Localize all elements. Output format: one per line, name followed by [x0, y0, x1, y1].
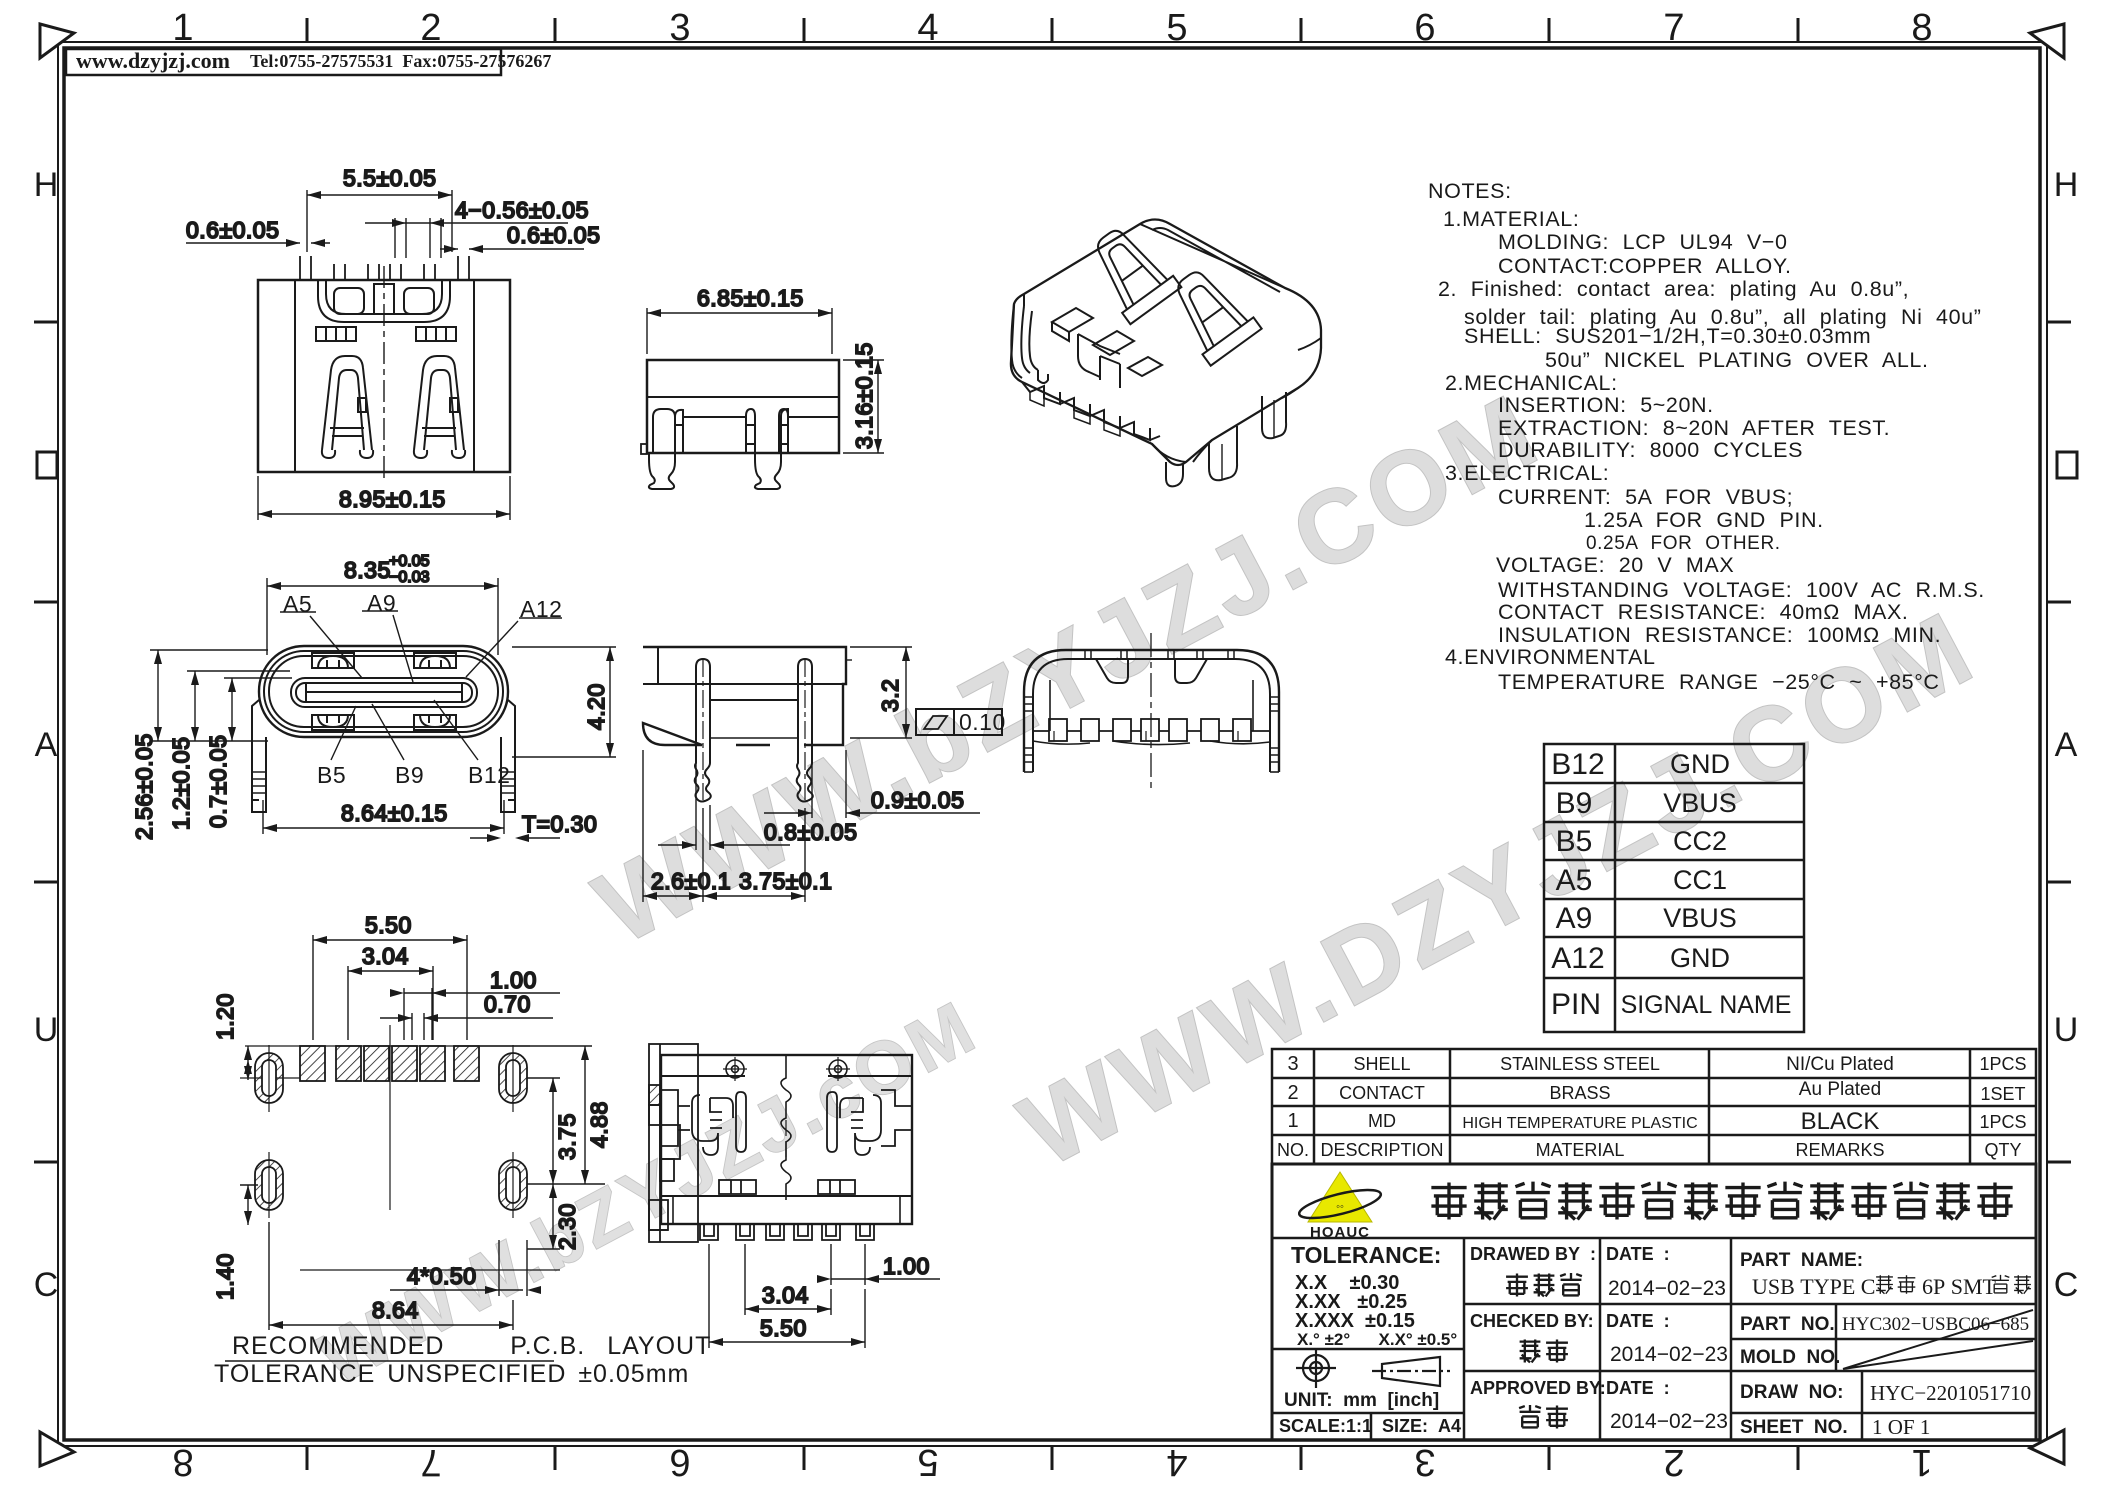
svg-text:VBUS: VBUS — [1663, 903, 1737, 933]
svg-text:A12: A12 — [1551, 942, 1604, 975]
svg-text:◦◦: ◦◦ — [1336, 1201, 1344, 1213]
svg-text:DATE :: DATE : — [1606, 1311, 1670, 1331]
svg-text:CHECKED BY:: CHECKED BY: — [1470, 1311, 1594, 1331]
svg-text:CONTACT RESISTANCE: 40mΩ MAX.: CONTACT RESISTANCE: 40mΩ MAX. — [1498, 600, 1908, 624]
svg-text:HYC302−USBC06−685: HYC302−USBC06−685 — [1842, 1314, 2029, 1335]
svg-text:INSERTION: 5~20N.: INSERTION: 5~20N. — [1498, 393, 1714, 417]
svg-text:PART NAME:: PART NAME: — [1740, 1250, 1863, 1271]
svg-text:MD: MD — [1368, 1111, 1396, 1131]
svg-text:0.10: 0.10 — [959, 709, 1006, 735]
svg-text:2.6±0.1: 2.6±0.1 — [651, 868, 731, 894]
svg-text:2014−02−23: 2014−02−23 — [1610, 1343, 1728, 1366]
svg-text:HIGH TEMPERATURE PLASTIC: HIGH TEMPERATURE PLASTIC — [1462, 1115, 1697, 1132]
svg-text:B12: B12 — [1551, 748, 1604, 781]
svg-text:2: 2 — [1663, 1441, 1684, 1483]
svg-text:TOLERANCE UNSPECIFIED ±0.05mm: TOLERANCE UNSPECIFIED ±0.05mm — [214, 1360, 689, 1388]
svg-text:C: C — [2054, 1266, 2079, 1304]
svg-text:CC1: CC1 — [1673, 865, 1727, 895]
svg-text:3: 3 — [1287, 1053, 1298, 1075]
svg-text:6: 6 — [669, 1441, 690, 1483]
svg-text:B9: B9 — [395, 762, 424, 788]
svg-text:−0.03: −0.03 — [389, 569, 430, 586]
svg-text:Tel:0755-27575531 Fax:0755-27: Tel:0755-27575531 Fax:0755-27576267 — [250, 51, 551, 71]
svg-text:5: 5 — [1166, 7, 1187, 49]
svg-text:DESCRIPTION: DESCRIPTION — [1320, 1140, 1443, 1160]
svg-text:A5: A5 — [1556, 864, 1593, 897]
svg-text:2.30: 2.30 — [554, 1203, 580, 1250]
svg-text:HYC−2201051710: HYC−2201051710 — [1870, 1381, 2031, 1405]
svg-text:0.6±0.05: 0.6±0.05 — [186, 217, 279, 243]
svg-text:4.ENVIRONMENTAL: 4.ENVIRONMENTAL — [1445, 645, 1656, 669]
svg-text:CONTACT: CONTACT — [1339, 1083, 1425, 1103]
svg-text:1.00: 1.00 — [883, 1253, 930, 1279]
svg-text:B9: B9 — [1556, 787, 1593, 820]
svg-text:BLACK: BLACK — [1801, 1108, 1880, 1135]
svg-text:UNIT: mm [inch]: UNIT: mm [inch] — [1284, 1390, 1439, 1411]
svg-text:STAINLESS STEEL: STAINLESS STEEL — [1500, 1054, 1660, 1074]
svg-text:PART NO.: PART NO. — [1740, 1314, 1835, 1335]
svg-text:EXTRACTION: 8~20N AFTER TEST.: EXTRACTION: 8~20N AFTER TEST. — [1498, 416, 1890, 440]
svg-text:4: 4 — [1166, 1441, 1187, 1483]
svg-text:QTY: QTY — [1984, 1140, 2021, 1160]
svg-text:8.64±0.15: 8.64±0.15 — [341, 800, 448, 826]
svg-text:5.50: 5.50 — [365, 912, 412, 938]
svg-text:SHELL: SHELL — [1353, 1054, 1410, 1074]
svg-text:REMARKS: REMARKS — [1795, 1140, 1884, 1160]
svg-text:5: 5 — [917, 1441, 938, 1483]
svg-text:7: 7 — [420, 1441, 441, 1483]
svg-text:1PCS: 1PCS — [1979, 1054, 2026, 1074]
svg-text:1: 1 — [1911, 1441, 1932, 1483]
svg-text:2. Finished: contact area: pla: 2. Finished: contact area: plating Au 0.… — [1438, 277, 1909, 301]
svg-text:8: 8 — [172, 1441, 193, 1483]
svg-text:7: 7 — [1663, 7, 1684, 49]
svg-text:BRASS: BRASS — [1549, 1083, 1610, 1103]
svg-text:8.64: 8.64 — [372, 1297, 419, 1323]
svg-text:1SET: 1SET — [1980, 1084, 2025, 1104]
svg-text:SCALE:1:1: SCALE:1:1 — [1279, 1416, 1372, 1436]
svg-text:0.9±0.05: 0.9±0.05 — [871, 787, 964, 813]
svg-text:2: 2 — [420, 7, 441, 49]
svg-text:2014−02−23: 2014−02−23 — [1608, 1277, 1726, 1300]
svg-text:X.° ±2° X.X° ±0.5°: X.° ±2° X.X° ±0.5° — [1297, 1330, 1457, 1349]
svg-text:SIZE: A4: SIZE: A4 — [1382, 1416, 1461, 1436]
svg-text:X.XXX ±0.15: X.XXX ±0.15 — [1295, 1310, 1415, 1332]
svg-text:+0.05: +0.05 — [389, 553, 430, 570]
svg-text:TOLERANCE:: TOLERANCE: — [1291, 1242, 1441, 1268]
svg-text:3.2: 3.2 — [877, 679, 903, 712]
svg-text:3.ELECTRICAL:: 3.ELECTRICAL: — [1445, 461, 1609, 485]
svg-text:VBUS: VBUS — [1663, 788, 1737, 818]
svg-text:3.16±0.15: 3.16±0.15 — [851, 342, 877, 449]
svg-text:4.20: 4.20 — [583, 683, 609, 730]
svg-text:0.70: 0.70 — [484, 991, 531, 1017]
svg-text:APPROVED BY:: APPROVED BY: — [1470, 1378, 1606, 1398]
svg-text:TEMPERATURE RANGE −25°C ~ +85°: TEMPERATURE RANGE −25°C ~ +85°C — [1498, 670, 1940, 694]
svg-text:5.50: 5.50 — [760, 1315, 807, 1341]
svg-text:DRAWED BY :: DRAWED BY : — [1470, 1244, 1596, 1264]
svg-text:B12: B12 — [468, 762, 510, 788]
svg-text:INSULATION RESISTANCE: 100MΩ M: INSULATION RESISTANCE: 100MΩ MIN. — [1498, 623, 1941, 647]
svg-text:VOLTAGE: 20 V MAX: VOLTAGE: 20 V MAX — [1496, 553, 1734, 577]
svg-text:1.MATERIAL:: 1.MATERIAL: — [1443, 207, 1579, 231]
svg-text:SHEET NO.: SHEET NO. — [1740, 1417, 1848, 1438]
svg-text:C: C — [34, 1266, 59, 1304]
svg-text:4−0.56±0.05: 4−0.56±0.05 — [455, 197, 589, 223]
svg-text:4.88: 4.88 — [586, 1101, 612, 1148]
svg-text:3: 3 — [1414, 1441, 1435, 1483]
svg-text:1: 1 — [172, 7, 193, 49]
svg-text:SHELL: SUS201−1/2H,T=0.30±0.03: SHELL: SUS201−1/2H,T=0.30±0.03mm — [1464, 324, 1871, 348]
svg-text:CONTACT:COPPER ALLOY.: CONTACT:COPPER ALLOY. — [1498, 254, 1792, 278]
svg-text:MOLD NO.: MOLD NO. — [1740, 1347, 1840, 1368]
svg-text:DRAW NO:: DRAW NO: — [1740, 1382, 1843, 1403]
svg-text:1.20: 1.20 — [212, 993, 238, 1040]
svg-text:RECOMMENDED P.C.B. LAYOUT: RECOMMENDED P.C.B. LAYOUT — [232, 1332, 711, 1360]
svg-text:H: H — [2054, 166, 2079, 204]
svg-text:2.56±0.05: 2.56±0.05 — [131, 733, 157, 840]
svg-text:CURRENT: 5A FOR VBUS;: CURRENT: 5A FOR VBUS; — [1498, 485, 1793, 509]
svg-text:3: 3 — [669, 7, 690, 49]
svg-text:Au Plated: Au Plated — [1799, 1079, 1881, 1100]
svg-text:NOTES:: NOTES: — [1428, 179, 1512, 203]
svg-text:0.7±0.05: 0.7±0.05 — [205, 735, 231, 828]
svg-text:8: 8 — [1911, 7, 1932, 49]
svg-text:CC2: CC2 — [1673, 826, 1727, 856]
svg-text:www.dzyjzj.com: www.dzyjzj.com — [76, 48, 230, 73]
svg-text:GND: GND — [1670, 943, 1730, 973]
svg-text:1.25A FOR GND PIN.: 1.25A FOR GND PIN. — [1584, 508, 1824, 532]
svg-text:DATE :: DATE : — [1606, 1244, 1670, 1264]
svg-text:6: 6 — [1414, 7, 1435, 49]
svg-text:3.75: 3.75 — [554, 1113, 580, 1160]
svg-text:8.95±0.15: 8.95±0.15 — [339, 486, 446, 512]
svg-text:1.2±0.05: 1.2±0.05 — [168, 737, 194, 830]
svg-text:3.04: 3.04 — [362, 943, 409, 969]
svg-text:0.25A FOR OTHER.: 0.25A FOR OTHER. — [1586, 533, 1781, 554]
svg-text:U: U — [2054, 1011, 2079, 1049]
svg-text:A9: A9 — [1556, 902, 1593, 935]
svg-text:USB TYPE C: USB TYPE C — [1752, 1274, 1875, 1299]
svg-text:6.85±0.15: 6.85±0.15 — [697, 285, 804, 311]
svg-text:NI/Cu Plated: NI/Cu Plated — [1786, 1054, 1894, 1075]
svg-text:0.8±0.05: 0.8±0.05 — [764, 819, 857, 845]
svg-text:1PCS: 1PCS — [1979, 1112, 2026, 1132]
svg-text:1 OF 1: 1 OF 1 — [1872, 1415, 1930, 1439]
svg-text:H: H — [34, 166, 59, 204]
svg-text:DURABILITY: 8000 CYCLES: DURABILITY: 8000 CYCLES — [1498, 438, 1803, 462]
svg-text:U: U — [34, 1011, 59, 1049]
svg-text:A9: A9 — [367, 590, 396, 616]
svg-text:T=0.30: T=0.30 — [522, 811, 597, 837]
svg-text:MOLDING: LCP UL94 V−0: MOLDING: LCP UL94 V−0 — [1498, 230, 1788, 254]
svg-text:0.6±0.05: 0.6±0.05 — [507, 222, 600, 248]
svg-text:8.35: 8.35 — [344, 557, 391, 583]
svg-text:A: A — [35, 726, 58, 764]
svg-text:A5: A5 — [283, 591, 312, 617]
svg-text:B5: B5 — [1556, 825, 1593, 858]
svg-text:MATERIAL: MATERIAL — [1536, 1140, 1625, 1160]
svg-text:GND: GND — [1670, 749, 1730, 779]
svg-text:1.00: 1.00 — [490, 967, 537, 993]
svg-text:4*0.50: 4*0.50 — [407, 1263, 477, 1289]
svg-text:WITHSTANDING VOLTAGE: 100V AC: WITHSTANDING VOLTAGE: 100V AC R.M.S. — [1498, 578, 1985, 602]
svg-text:B5: B5 — [317, 762, 346, 788]
svg-text:3.04: 3.04 — [762, 1282, 809, 1308]
svg-text:A: A — [2055, 726, 2078, 764]
svg-text:HOAUC: HOAUC — [1310, 1224, 1370, 1241]
svg-text:50u” NICKEL PLATING OVER ALL.: 50u” NICKEL PLATING OVER ALL. — [1545, 348, 1929, 372]
svg-text:2014−02−23: 2014−02−23 — [1610, 1410, 1728, 1433]
svg-text:DATE :: DATE : — [1606, 1378, 1670, 1398]
svg-text:2.MECHANICAL:: 2.MECHANICAL: — [1445, 371, 1618, 395]
svg-text:SIGNAL NAME: SIGNAL NAME — [1621, 991, 1792, 1019]
svg-text:5.5±0.05: 5.5±0.05 — [343, 165, 436, 191]
svg-text:1: 1 — [1287, 1110, 1298, 1132]
svg-text:4: 4 — [917, 7, 938, 49]
svg-text:6P SMT: 6P SMT — [1922, 1274, 1997, 1299]
svg-text:PIN: PIN — [1551, 988, 1601, 1021]
svg-text:NO.: NO. — [1277, 1140, 1309, 1160]
svg-text:1.40: 1.40 — [212, 1253, 238, 1300]
svg-text:2: 2 — [1287, 1082, 1298, 1104]
svg-text:3.75±0.1: 3.75±0.1 — [739, 868, 832, 894]
